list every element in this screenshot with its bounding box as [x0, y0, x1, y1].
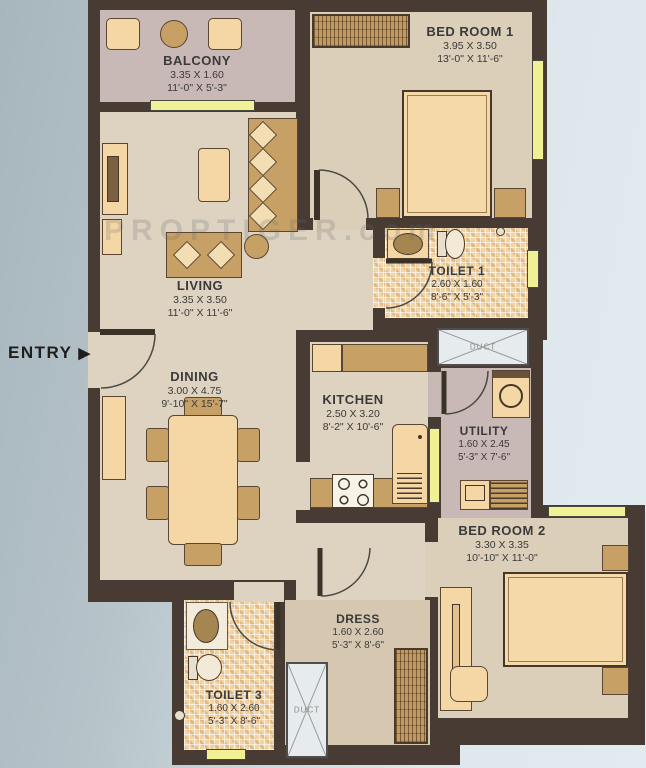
- entry-label: ENTRY ▶: [8, 343, 92, 363]
- bedroom2-label: BED ROOM 2 3.30 X 3.35 10'-10" X 11'-0": [422, 523, 582, 566]
- balcony-table: [160, 20, 188, 48]
- duct-2-label: DUCT: [288, 706, 326, 715]
- kitchen-window: [429, 428, 440, 503]
- bedroom2-chair: [450, 666, 488, 702]
- toilet3-wc-bowl: [196, 654, 222, 681]
- toilet1-doorway: [373, 258, 385, 308]
- utility-doorway: [428, 372, 441, 417]
- dining-chair: [146, 486, 169, 520]
- entry-arrow-icon: ▶: [79, 344, 92, 362]
- bedroom2-window: [548, 506, 626, 517]
- dining-label: DINING 3.00 X 4.75 9'-10" X 15'-7": [122, 369, 267, 412]
- toilet3-washbasin: [193, 609, 219, 643]
- kitchen-counter-top: [342, 344, 428, 372]
- balcony-chair-right: [208, 18, 242, 50]
- bedroom2-bed: [503, 572, 628, 667]
- toilet1-label: TOILET 1 2.60 X 1.60 8'-6" X 5'-3": [392, 264, 522, 304]
- dining-chair: [237, 486, 260, 520]
- balcony-chair-left: [106, 18, 140, 50]
- duct-1: DUCT: [437, 328, 529, 366]
- balcony-label: BALCONY 3.35 X 1.60 11'-0" X 5'-3": [117, 53, 277, 96]
- bedroom1-bed: [402, 90, 492, 218]
- fridge-vent: [397, 473, 422, 499]
- coffee-table: [198, 148, 230, 202]
- dress-wardrobe: [394, 648, 428, 744]
- bedroom1-label: BED ROOM 1 3.95 X 3.50 13'-0" X 11'-6": [390, 24, 550, 67]
- kitchen-label: KITCHEN 2.50 X 3.20 8'-2" X 10'-6": [305, 392, 401, 435]
- tv-icon: [107, 156, 119, 202]
- utility-label: UTILITY 1.60 X 2.45 5'-3" X 7'-6": [443, 424, 525, 464]
- toilet1-shower-icon: [496, 227, 505, 236]
- balcony-window: [150, 100, 255, 111]
- utility-drainboard: [490, 480, 528, 510]
- tv-unit: [102, 143, 128, 215]
- dining-chair: [237, 428, 260, 462]
- living-label: LIVING 3.35 X 3.50 11'-0" X 11'-6": [120, 278, 280, 321]
- bedroom2-nightstand-bottom: [602, 667, 629, 695]
- bedroom2-desk-slot: [452, 604, 460, 670]
- bedroom2-nightstand-top: [602, 545, 629, 571]
- dining-chair: [184, 543, 222, 566]
- sofa-cushion: [249, 148, 277, 176]
- hall-floor: [296, 523, 425, 602]
- toilet1-window: [527, 250, 539, 288]
- bedroom1-nightstand-right: [494, 188, 526, 218]
- toilet3-vanity: [186, 602, 228, 650]
- sofa-cushion: [249, 175, 277, 203]
- bedroom1-window: [532, 60, 544, 160]
- gas-stove: [332, 474, 374, 508]
- fridge: [392, 424, 428, 504]
- washing-machine-drum: [499, 384, 523, 408]
- duct-1-label: DUCT: [439, 343, 527, 352]
- toilet3-label: TOILET 3 1.60 X 2.60 5'-3" X 8'-6": [188, 688, 280, 728]
- utility-sink-basin: [465, 485, 485, 501]
- duct-2: DUCT: [286, 662, 328, 758]
- watermark: PROPTIGER.com: [104, 214, 442, 248]
- sofa-cushion: [249, 121, 277, 149]
- kitchen-doorway: [296, 462, 310, 510]
- floor-plan: DUCT DUCT: [0, 0, 646, 768]
- fridge-handle: [418, 435, 422, 439]
- washing-machine: [492, 370, 530, 418]
- washing-machine-panel: [493, 371, 529, 378]
- toilet3-doorway: [234, 582, 284, 602]
- dress-label: DRESS 1.60 X 2.60 5'-3" X 8'-6": [306, 612, 410, 652]
- dining-chair: [146, 428, 169, 462]
- toilet3-shower-icon: [174, 710, 185, 721]
- toilet3-window: [206, 749, 246, 760]
- dining-table: [168, 415, 238, 545]
- utility-sink: [460, 480, 490, 510]
- entry-text: ENTRY: [8, 343, 73, 363]
- toilet1-wc-bowl: [445, 229, 465, 259]
- kitchen-counter-box: [312, 344, 342, 372]
